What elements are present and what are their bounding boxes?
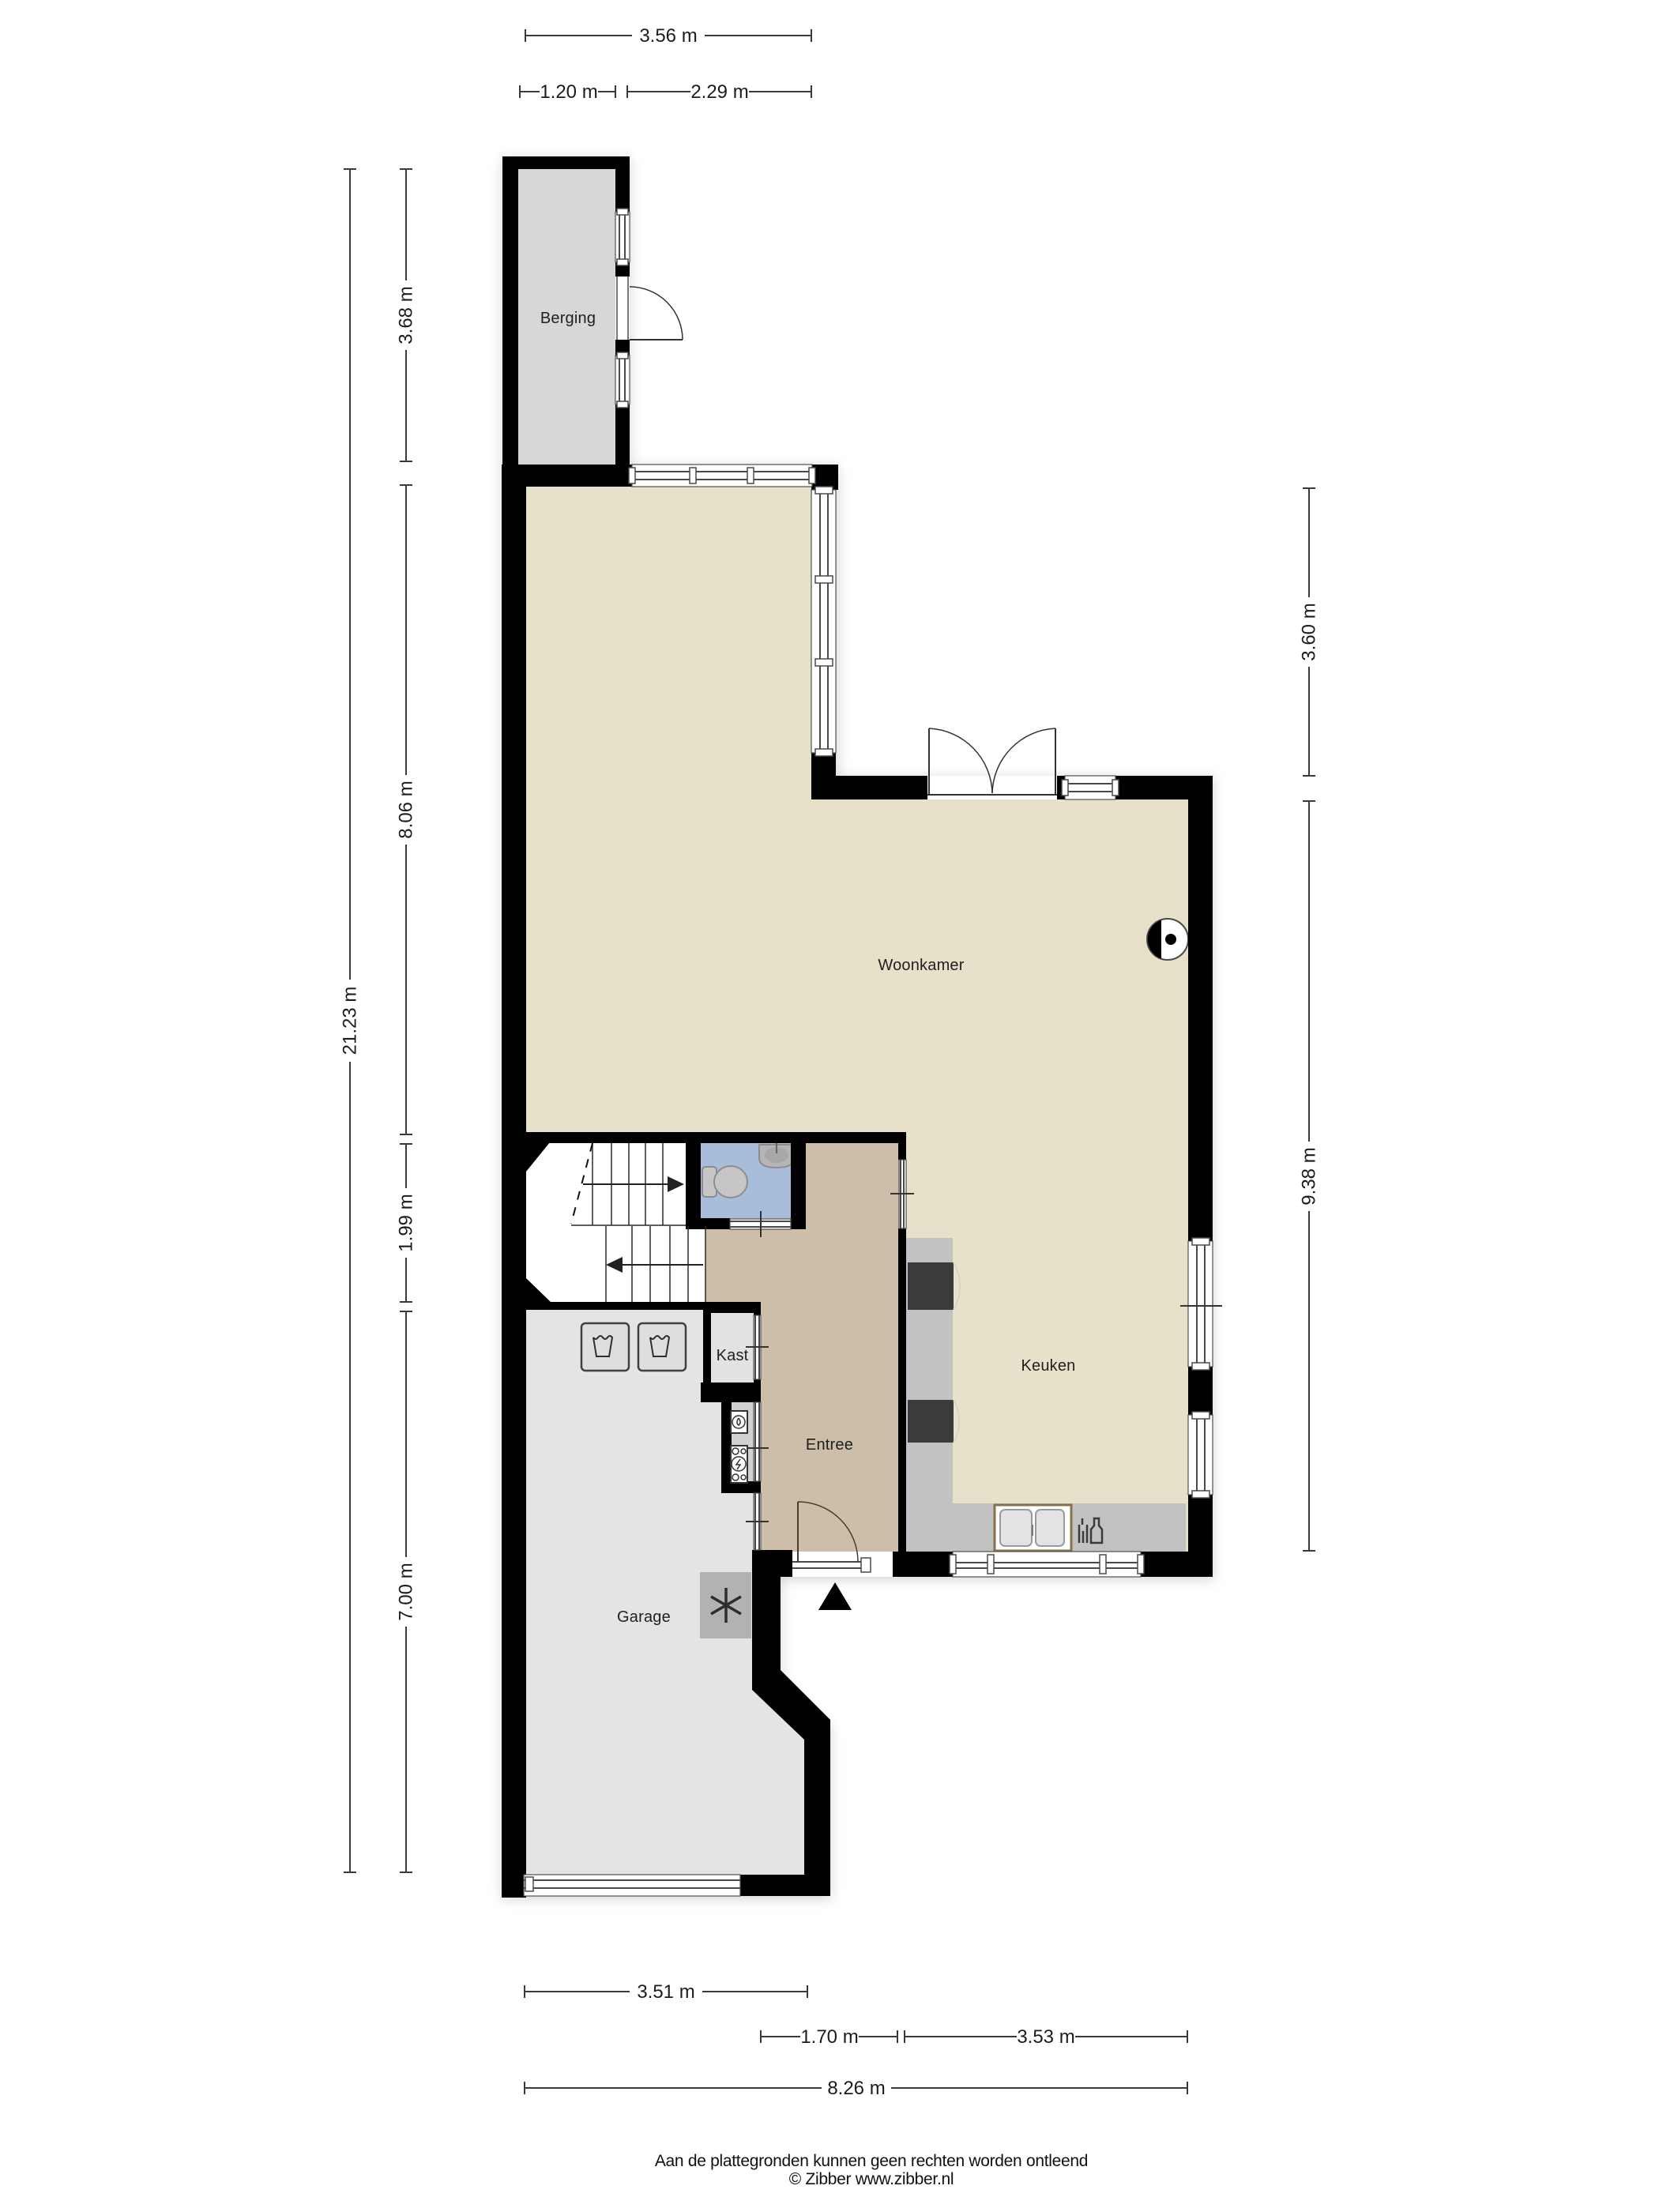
svg-text:Entree: Entree [806, 1436, 853, 1454]
svg-text:© Zibber www.zibber.nl: © Zibber www.zibber.nl [789, 2170, 954, 2188]
svg-text:Berging: Berging [540, 310, 596, 327]
svg-text:3.60 m: 3.60 m [1299, 603, 1320, 660]
svg-text:Kast: Kast [717, 1347, 749, 1364]
svg-text:3.68 m: 3.68 m [396, 286, 417, 344]
svg-text:3.51 m: 3.51 m [637, 1981, 694, 2003]
svg-text:1.99 m: 1.99 m [396, 1194, 417, 1251]
svg-text:21.23 m: 21.23 m [340, 987, 361, 1055]
svg-text:Woonkamer: Woonkamer [878, 957, 964, 974]
svg-text:8.06 m: 8.06 m [396, 781, 417, 838]
svg-text:Aan de plattegronden kunnen ge: Aan de plattegronden kunnen geen rechten… [655, 2152, 1088, 2170]
svg-text:3.56 m: 3.56 m [639, 25, 697, 47]
svg-text:Garage: Garage [617, 1608, 671, 1626]
svg-text:8.26 m: 8.26 m [827, 2078, 885, 2099]
svg-text:3.53 m: 3.53 m [1017, 2026, 1074, 2048]
svg-text:2.29 m: 2.29 m [690, 81, 748, 103]
svg-text:9.38 m: 9.38 m [1299, 1147, 1320, 1205]
svg-text:7.00 m: 7.00 m [396, 1563, 417, 1620]
svg-text:Keuken: Keuken [1021, 1357, 1075, 1375]
svg-text:1.70 m: 1.70 m [800, 2026, 858, 2048]
svg-text:1.20 m: 1.20 m [540, 81, 597, 103]
